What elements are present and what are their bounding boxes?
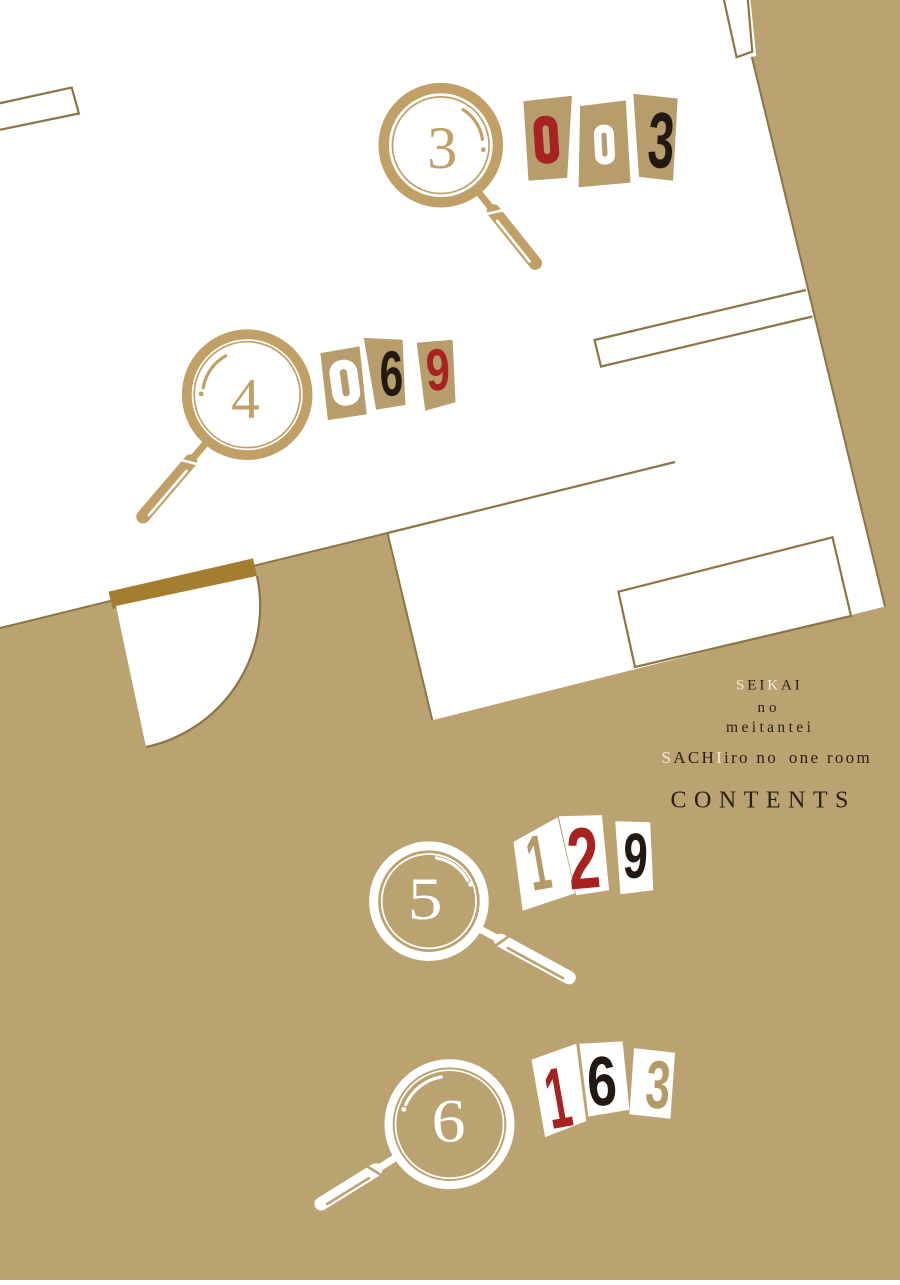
svg-text:5: 5 xyxy=(408,866,443,932)
svg-text:CONTENTS: CONTENTS xyxy=(671,788,856,814)
svg-text:6: 6 xyxy=(585,1043,619,1122)
svg-text:3: 3 xyxy=(427,115,457,181)
svg-text:6: 6 xyxy=(432,1088,466,1156)
svg-text:4: 4 xyxy=(231,368,260,431)
svg-text:9: 9 xyxy=(622,819,649,892)
svg-text:no: no xyxy=(758,700,781,716)
svg-text:3: 3 xyxy=(643,1047,673,1124)
svg-text:6: 6 xyxy=(379,339,404,410)
svg-text:SACHIiro no one room: SACHIiro no one room xyxy=(662,748,873,767)
svg-text:meitantei: meitantei xyxy=(726,719,814,736)
svg-text:3: 3 xyxy=(646,95,677,185)
svg-text:9: 9 xyxy=(424,336,451,403)
svg-text:SEIKAI: SEIKAI xyxy=(736,678,803,694)
